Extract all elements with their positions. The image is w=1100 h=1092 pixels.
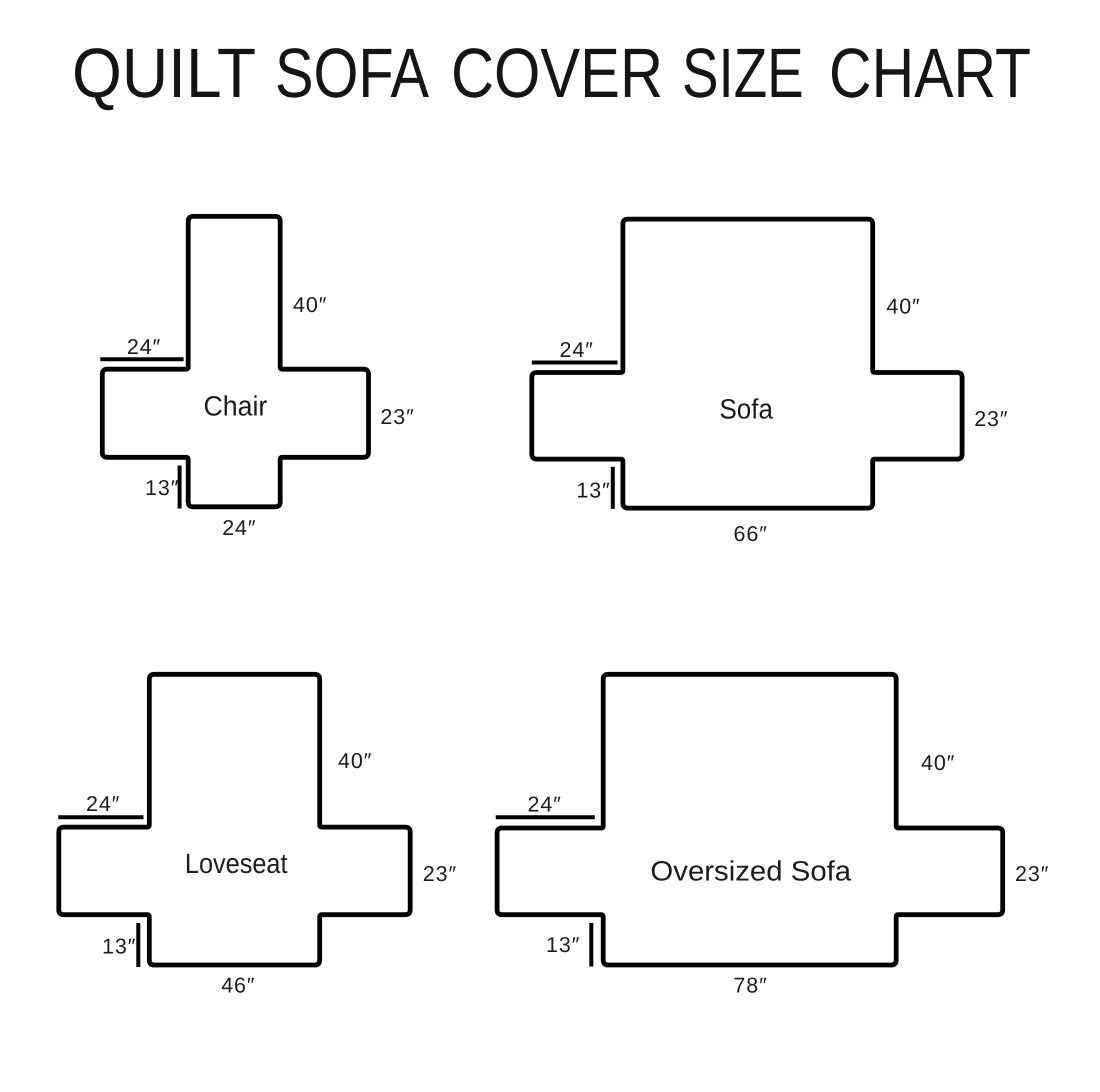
svg-text:40″: 40″ xyxy=(886,295,920,319)
svg-text:13″: 13″ xyxy=(546,933,580,957)
svg-text:23″: 23″ xyxy=(1015,862,1049,886)
svg-text:40″: 40″ xyxy=(293,293,327,317)
svg-text:13″: 13″ xyxy=(102,935,136,959)
svg-text:23″: 23″ xyxy=(380,405,414,429)
svg-text:24″: 24″ xyxy=(222,516,256,540)
svg-text:13″: 13″ xyxy=(576,479,610,503)
svg-text:Loveseat: Loveseat xyxy=(185,848,288,879)
svg-text:24″: 24″ xyxy=(127,335,161,359)
svg-text:24″: 24″ xyxy=(560,338,594,362)
svg-text:23″: 23″ xyxy=(423,862,457,886)
svg-text:40″: 40″ xyxy=(921,751,955,775)
svg-text:78″: 78″ xyxy=(733,973,767,997)
svg-text:40″: 40″ xyxy=(338,749,372,773)
svg-text:QUILTSOFACOVERSIZECHART: QUILTSOFACOVERSIZECHART xyxy=(72,34,1031,112)
svg-text:66″: 66″ xyxy=(734,522,768,546)
svg-text:Sofa: Sofa xyxy=(720,394,774,425)
svg-text:24″: 24″ xyxy=(528,793,562,817)
svg-text:46″: 46″ xyxy=(221,974,255,998)
svg-text:24″: 24″ xyxy=(86,792,120,816)
svg-text:Oversized Sofa: Oversized Sofa xyxy=(650,856,851,887)
svg-text:Chair: Chair xyxy=(204,391,268,422)
svg-text:13″: 13″ xyxy=(145,476,179,500)
svg-text:23″: 23″ xyxy=(974,407,1008,431)
